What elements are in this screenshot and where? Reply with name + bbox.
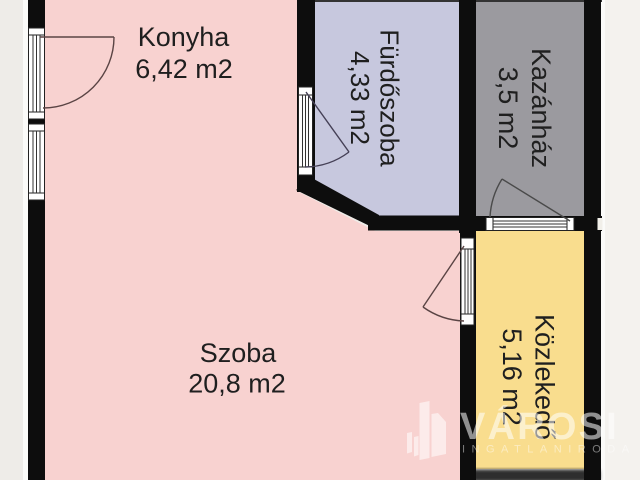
svg-text:3,5 m2: 3,5 m2 [493, 67, 523, 150]
svg-text:4,33 m2: 4,33 m2 [345, 51, 375, 145]
svg-text:Szoba: Szoba [200, 338, 278, 368]
svg-text:20,8 m2: 20,8 m2 [188, 369, 286, 399]
svg-text:Fürdőszoba: Fürdőszoba [375, 29, 405, 167]
svg-text:VÁROSI: VÁROSI [460, 404, 619, 448]
svg-text:Kazánház: Kazánház [526, 48, 556, 168]
svg-text:6,42 m2: 6,42 m2 [135, 54, 233, 84]
svg-text:Konyha: Konyha [138, 22, 231, 52]
svg-text:INGATLANIRODA: INGATLANIRODA [462, 444, 636, 456]
